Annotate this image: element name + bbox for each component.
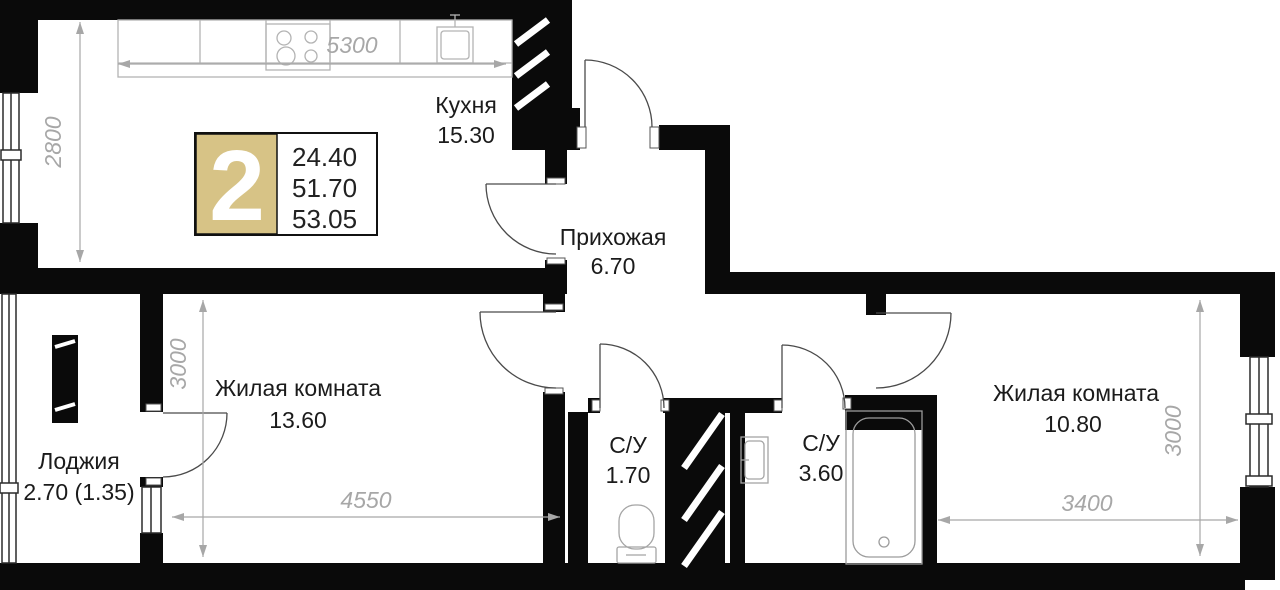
loggia-label: Лоджия bbox=[38, 448, 120, 474]
hallway-area: 6.70 bbox=[591, 253, 636, 279]
kitchen-door bbox=[486, 184, 556, 254]
dim-kitchen-width: 5300 bbox=[326, 32, 377, 58]
floor-plan: 5300 2800 3000 4550 3400 3000 Кухня 15.3… bbox=[0, 0, 1280, 590]
dim-living1-width: 4550 bbox=[340, 487, 391, 513]
loggia-room-window bbox=[142, 487, 161, 533]
bathroom2-label: С/У bbox=[802, 430, 840, 456]
legend-room-count: 2 bbox=[209, 130, 265, 242]
dim-living2-depth: 3000 bbox=[1160, 405, 1186, 456]
vent-shaft-gap bbox=[725, 413, 730, 563]
bathroom1-door bbox=[600, 344, 664, 408]
legend-area-main: 51.70 bbox=[292, 173, 357, 203]
legend-area-total: 53.05 bbox=[292, 204, 357, 234]
living1-door bbox=[480, 312, 556, 388]
kitchen-label: Кухня bbox=[435, 92, 497, 118]
dim-kitchen-depth: 2800 bbox=[40, 116, 66, 168]
living2-area: 10.80 bbox=[1044, 411, 1102, 437]
living1-label: Жилая комната bbox=[215, 375, 381, 401]
bathtub-icon bbox=[846, 411, 922, 564]
bathroom2-area: 3.60 bbox=[799, 460, 844, 486]
legend-area-living: 24.40 bbox=[292, 142, 357, 172]
dim-living1-depth: 3000 bbox=[165, 338, 191, 389]
living2-window bbox=[1246, 357, 1272, 487]
living2-label: Жилая комната bbox=[993, 380, 1159, 406]
bathroom1-area: 1.70 bbox=[606, 462, 651, 488]
washbasin-icon bbox=[741, 437, 768, 483]
legend-box: 2 24.40 51.70 53.05 bbox=[195, 130, 377, 242]
hallway-label: Прихожая bbox=[560, 224, 667, 250]
loggia-glazing bbox=[0, 294, 18, 563]
bathroom1-label: С/У bbox=[609, 432, 647, 458]
kitchen-sink-icon bbox=[437, 15, 473, 63]
kitchen-counter bbox=[118, 20, 512, 77]
loggia-area: 2.70 (1.35) bbox=[23, 479, 134, 505]
entrance-door bbox=[585, 60, 652, 127]
bathroom2-door bbox=[782, 345, 845, 408]
toilet-icon bbox=[617, 505, 656, 563]
living2-door bbox=[876, 313, 951, 388]
living1-area: 13.60 bbox=[269, 407, 327, 433]
kitchen-area: 15.30 bbox=[437, 122, 495, 148]
balcony-door bbox=[163, 413, 227, 477]
room-labels: Кухня 15.30 Прихожая 6.70 Жилая комната … bbox=[23, 92, 1159, 505]
kitchen-window bbox=[1, 93, 21, 223]
dim-living2-width: 3400 bbox=[1061, 490, 1112, 516]
